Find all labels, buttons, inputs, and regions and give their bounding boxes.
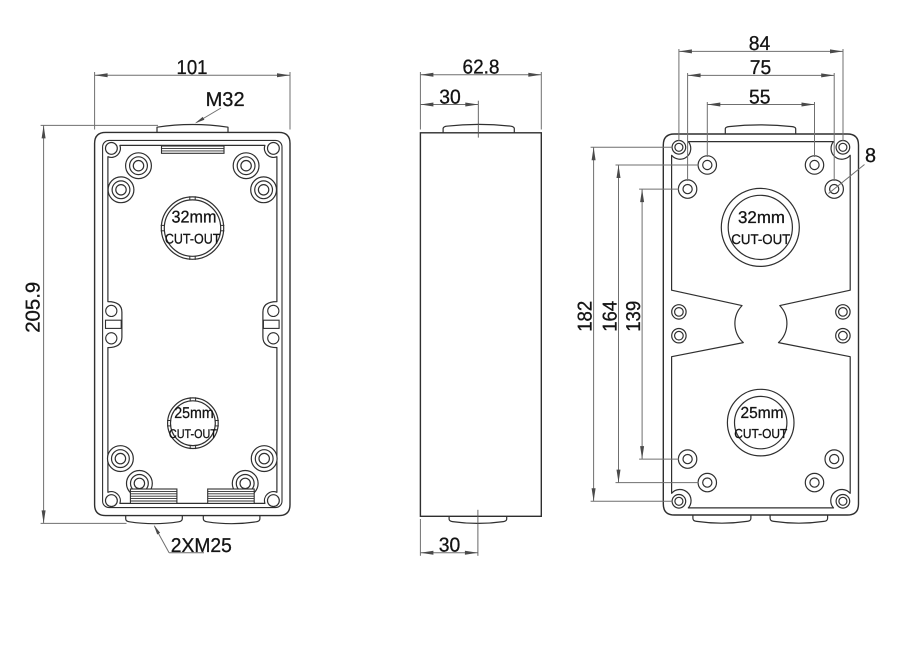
svg-text:75: 75 (750, 57, 772, 79)
svg-text:32mm: 32mm (738, 208, 785, 227)
svg-text:30: 30 (439, 86, 461, 108)
svg-text:101: 101 (177, 57, 208, 79)
svg-text:205.9: 205.9 (23, 282, 45, 333)
svg-text:CUT-OUT: CUT-OUT (165, 231, 221, 247)
svg-text:62.8: 62.8 (463, 57, 500, 79)
svg-text:182: 182 (574, 301, 596, 332)
svg-text:M32: M32 (206, 89, 245, 111)
svg-text:8: 8 (865, 145, 876, 167)
svg-text:25mm: 25mm (174, 405, 214, 422)
svg-text:84: 84 (749, 33, 771, 55)
svg-text:CUT-OUT: CUT-OUT (169, 427, 217, 441)
svg-text:164: 164 (599, 301, 621, 332)
svg-text:55: 55 (749, 86, 771, 108)
svg-text:25mm: 25mm (741, 405, 784, 422)
svg-text:2XM25: 2XM25 (171, 535, 232, 557)
svg-text:139: 139 (623, 301, 645, 332)
svg-text:CUT-OUT: CUT-OUT (731, 231, 790, 247)
svg-text:30: 30 (439, 534, 461, 556)
svg-text:32mm: 32mm (172, 208, 217, 227)
svg-text:CUT-OUT: CUT-OUT (734, 426, 787, 441)
